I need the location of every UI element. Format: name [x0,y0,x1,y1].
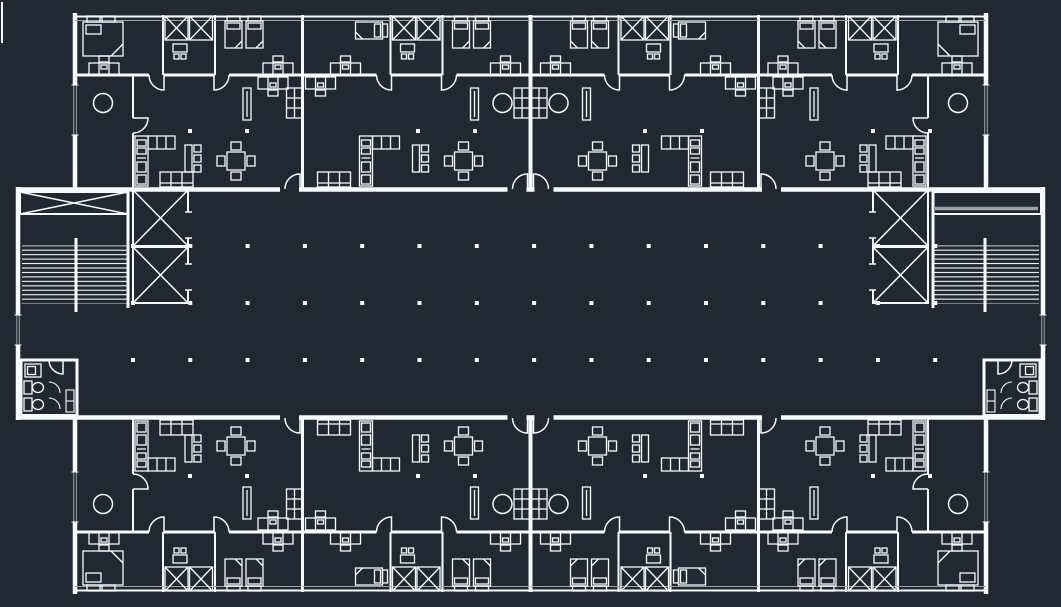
stair-ramp-cross [20,192,128,214]
bottom-apartment-band [72,417,990,594]
right-core [869,187,1047,420]
column-grid-dots [131,244,937,362]
floor-plan-canvas[interactable] [0,0,1061,607]
top-apartment-band [72,13,990,190]
left-core [15,187,193,420]
cad-viewport [0,0,1061,607]
